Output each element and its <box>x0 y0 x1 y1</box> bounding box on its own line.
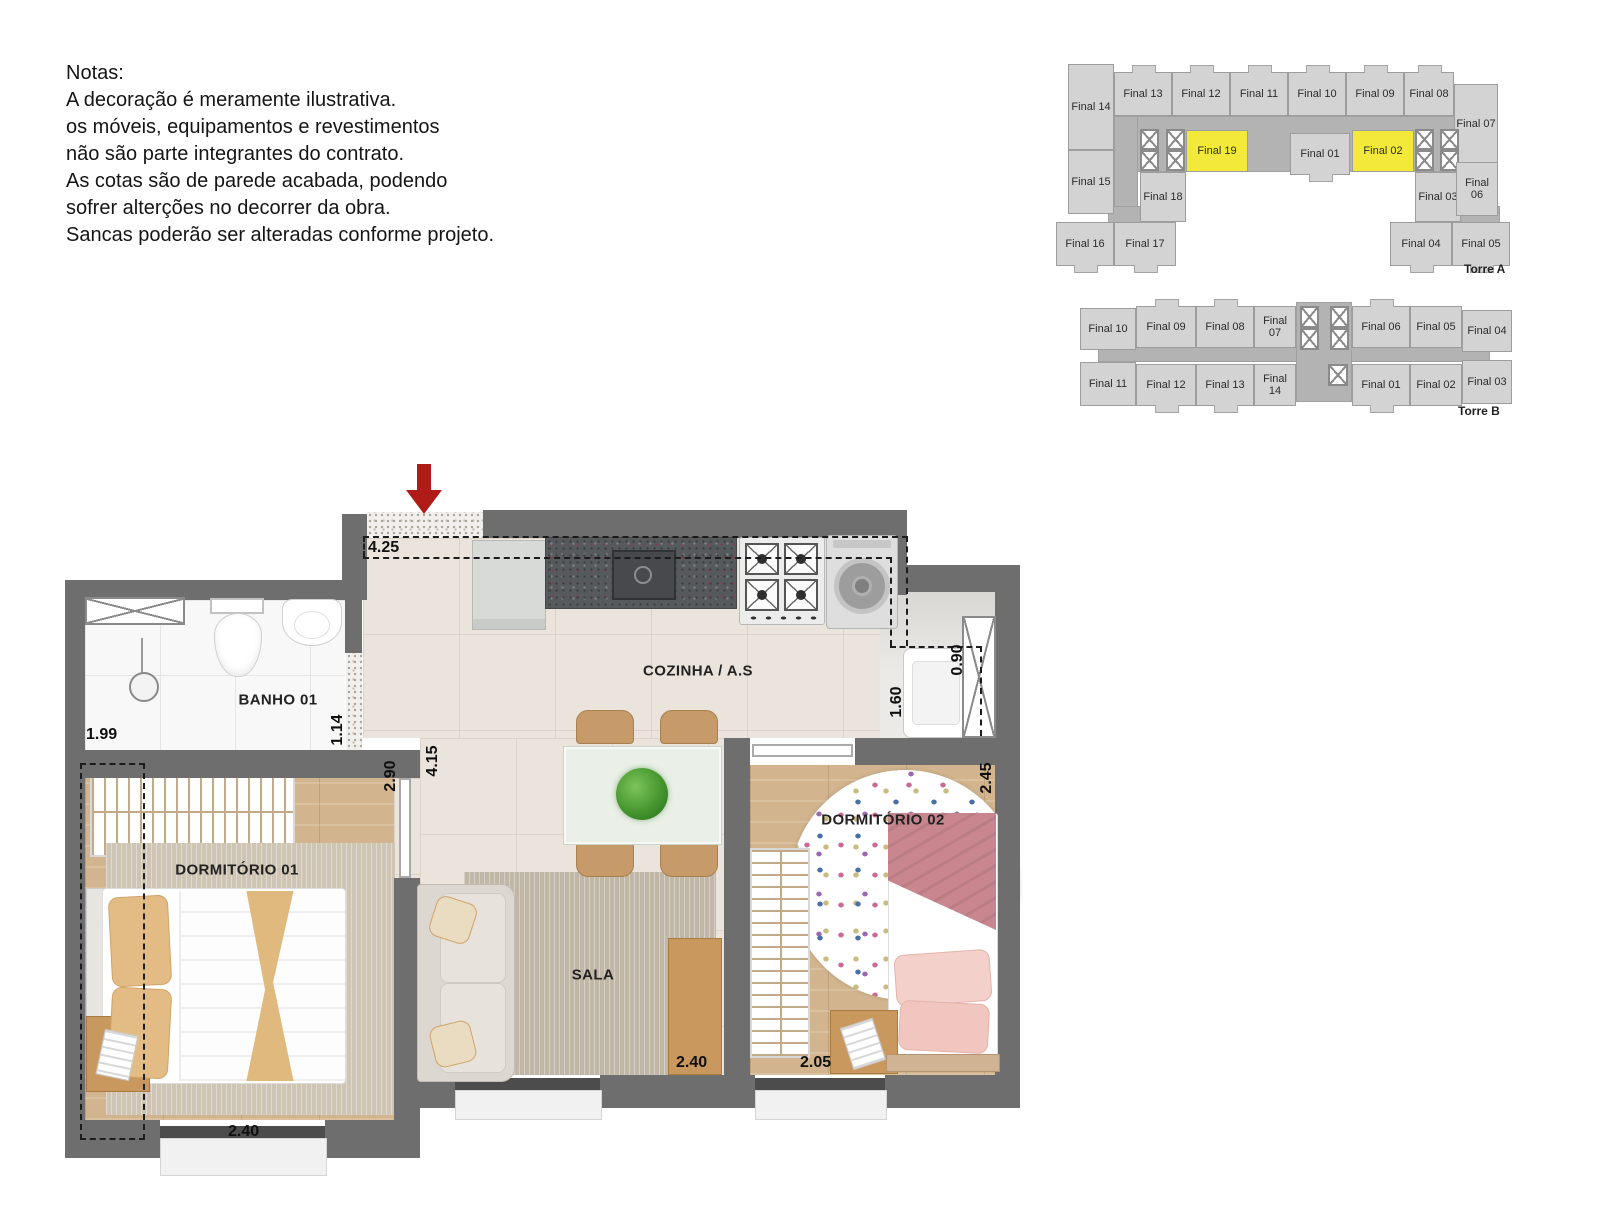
room-label: COZINHA / A.S <box>643 663 753 680</box>
dimension-label: 1.14 <box>329 708 347 752</box>
washer-drum-center <box>852 576 872 596</box>
wall <box>905 565 1020 592</box>
dimension-line <box>890 557 892 646</box>
unit-highlighted: Final 02 <box>1352 130 1414 172</box>
room-label: DORMITÓRIO 01 <box>175 862 299 879</box>
tower-label: Torre A <box>1464 262 1505 276</box>
unit-highlighted: Final 19 <box>1186 130 1248 172</box>
unit: Final 10 <box>1288 72 1346 116</box>
unit: Final 03 <box>1462 360 1512 404</box>
stove <box>739 537 825 625</box>
dining-chair <box>576 710 634 744</box>
elevator-shaft-icon <box>1300 328 1319 350</box>
unit: Final 13 <box>1196 364 1254 406</box>
closet-rod <box>780 850 782 1056</box>
toilet-tank <box>210 598 264 614</box>
washing-machine <box>826 535 898 629</box>
dimension-label: 2.05 <box>800 1054 831 1072</box>
bedroom2-door-leaf <box>752 744 853 757</box>
shower-box <box>85 597 185 625</box>
room-label: DORMITÓRIO 02 <box>821 812 945 829</box>
unit: Final 02 <box>1410 364 1462 406</box>
unit: Final 13 <box>1114 72 1172 116</box>
refrigerator <box>472 540 546 630</box>
wall <box>724 738 750 1075</box>
unit: Final 12 <box>1136 364 1196 406</box>
dimension-line <box>980 646 982 736</box>
dimension-label: 0.90 <box>949 638 967 682</box>
unit: Final 08 <box>1404 72 1454 116</box>
unit: Final 17 <box>1114 222 1176 266</box>
burner-icon <box>784 543 818 575</box>
dimension-line <box>363 536 908 538</box>
entry-door-threshold <box>367 512 483 538</box>
tower-label: Torre B <box>1458 404 1500 418</box>
bed2-pillow <box>898 1000 990 1055</box>
unit: Final 04 <box>1462 310 1512 352</box>
unit: Final 18 <box>1140 172 1186 222</box>
dimension-boundary <box>80 763 145 1140</box>
burner-icon <box>745 579 779 611</box>
elevator-shaft-icon <box>1440 129 1459 150</box>
bathroom-sink-bowl <box>294 611 330 639</box>
dining-chair <box>576 843 634 877</box>
unit: Final 07 <box>1454 84 1498 164</box>
bedroom2-window <box>755 1078 885 1090</box>
bedroom1-door-leaf <box>399 778 411 878</box>
wall <box>724 1075 755 1108</box>
floor-plan-page: { "notes": { "title": "Notas:", "lines":… <box>0 0 1600 1232</box>
unit: Final 08 <box>1196 306 1254 348</box>
bed2-foot-bench <box>886 1054 1000 1072</box>
elevator-shaft-icon <box>1330 328 1349 350</box>
unit: Final 09 <box>1346 72 1404 116</box>
unit: Final 05 <box>1452 222 1510 266</box>
dimension-line <box>363 536 365 557</box>
burner-icon <box>784 579 818 611</box>
wall <box>483 510 907 538</box>
stove-knobs <box>744 614 820 622</box>
washer-panel <box>833 540 891 548</box>
unit: Final 01 <box>1352 364 1410 406</box>
dimension-label: 4.15 <box>424 739 442 783</box>
bedroom1-window-sill <box>160 1138 327 1176</box>
elevator-shaft-icon <box>1415 129 1434 150</box>
unit: Final 03 <box>1415 172 1461 222</box>
dimension-label: 4.25 <box>368 539 399 557</box>
unit: Final 06 <box>1456 162 1498 216</box>
dimension-label: 2.45 <box>978 756 996 800</box>
wall <box>995 592 1020 1080</box>
elevator-shaft-icon <box>1166 150 1185 171</box>
dimension-label: 2.40 <box>676 1054 707 1072</box>
elevator-shaft-icon <box>1166 129 1185 150</box>
burner-icon <box>745 543 779 575</box>
unit: Final 12 <box>1172 72 1230 116</box>
elevator-shaft-icon <box>1140 129 1159 150</box>
unit: Final 06 <box>1352 306 1410 348</box>
shower-column <box>141 638 143 674</box>
shower-drain <box>129 672 159 702</box>
wall <box>885 1075 1020 1108</box>
dimension-line <box>363 557 892 559</box>
unit: Final 09 <box>1136 306 1196 348</box>
dimension-label: 2.40 <box>228 1123 259 1141</box>
dimension-label: 1.60 <box>888 680 906 724</box>
wall <box>855 738 995 765</box>
unit: Final 04 <box>1390 222 1452 266</box>
dimension-line <box>906 536 908 646</box>
unit: Final 14 <box>1254 364 1296 406</box>
elevator-shaft-icon <box>1328 364 1348 386</box>
unit: Final 07 <box>1254 306 1296 348</box>
dining-chair <box>660 843 718 877</box>
kitchen-faucet <box>634 566 652 584</box>
bathroom-door-threshold <box>346 653 362 750</box>
sofa <box>417 884 515 1082</box>
room-label: BANHO 01 <box>238 692 317 709</box>
wall <box>325 1120 420 1158</box>
apartment-floor-plan: BANHO 01COZINHA / A.SDORMITÓRIO 01SALADO… <box>0 0 1100 1232</box>
unit: Final 11 <box>1230 72 1288 116</box>
unit: Final 05 <box>1410 306 1462 348</box>
bedroom2-closet <box>750 848 810 1058</box>
elevator-shaft-icon <box>1300 306 1319 328</box>
dimension-line <box>890 646 982 648</box>
table-plant <box>616 768 668 820</box>
unit: Final 01 <box>1290 133 1350 175</box>
dimension-label: 1.99 <box>86 726 117 744</box>
bedroom2-window-sill <box>755 1090 887 1120</box>
elevator-shaft-icon <box>1415 150 1434 171</box>
room-label: SALA <box>572 967 614 984</box>
elevator-shaft-icon <box>1140 150 1159 171</box>
dining-chair <box>660 710 718 744</box>
elevator-shaft-icon <box>1330 306 1349 328</box>
wall <box>600 1075 724 1108</box>
dimension-label: 2.90 <box>382 754 400 798</box>
living-room-window-sill <box>455 1090 602 1120</box>
shaft-box <box>962 616 996 738</box>
bed2-pillow <box>893 949 992 1008</box>
wall <box>345 580 362 653</box>
